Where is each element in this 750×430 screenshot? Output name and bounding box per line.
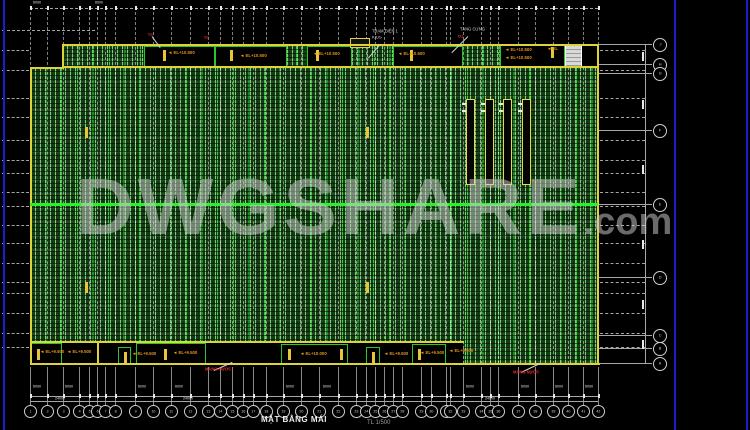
grid-bubble-bottom: 32 <box>444 405 457 418</box>
purlin-grid-line <box>2 243 29 244</box>
grid-bubble-label: 16 <box>241 410 245 414</box>
grid-bubble-label: E <box>659 203 661 207</box>
dim-tick <box>553 6 555 10</box>
dim-tick <box>583 394 585 398</box>
skylight-bar <box>466 99 475 185</box>
vertical-grid-line <box>115 12 116 364</box>
leader-arrow-icon: ◄ <box>240 54 245 58</box>
grid-bubble-label: 9 <box>134 410 136 414</box>
vertical-grid-line <box>490 12 491 364</box>
annotation-red-label: MÁNG NƯỚC <box>205 368 231 372</box>
dim-tick <box>63 6 65 10</box>
grid-bubble-label: 25 <box>373 410 377 414</box>
annotation-red-label: MÁNG NƯỚC <box>513 371 539 375</box>
bay-dimension-text: 6000 <box>466 385 474 389</box>
grid-bubble-bottom: 1 <box>24 405 37 418</box>
purlin-grid-line <box>2 347 29 348</box>
leader-arrow-icon: ◄ <box>40 350 45 354</box>
elevation-label: ◄ EL+9.500 <box>384 352 408 356</box>
elevation-label: ◄ EL+10.000 <box>300 352 327 356</box>
dim-tick <box>450 394 452 398</box>
elevation-label: ◄ EL+9.500 <box>40 350 64 354</box>
bay-dimension-text: 6000 <box>286 385 294 389</box>
dim-tick <box>421 394 423 398</box>
grid-bubble-label: B <box>659 347 661 351</box>
purlin-grid-line <box>2 117 29 118</box>
dim-tick <box>356 6 358 10</box>
dim-tick <box>190 6 192 10</box>
dim-tick <box>153 394 155 398</box>
purlin-grid-line <box>600 50 645 51</box>
purlin-grid-line <box>2 173 29 174</box>
grid-bubble-bottom: 3 <box>57 405 70 418</box>
right-dimension-line <box>645 44 646 363</box>
dim-tick <box>266 394 268 398</box>
roof-vent-box <box>393 46 463 67</box>
annotation-white-label: TĂNG CỨNG <box>460 28 485 32</box>
grid-bubble-label: 7 <box>104 410 106 414</box>
leader-arrow-icon: ◄ <box>67 350 72 354</box>
grid-bubble-label: 34 <box>479 410 483 414</box>
dim-tick <box>79 6 81 10</box>
elevation-label: ◄ EL+10.500 <box>313 52 340 56</box>
frame-grid-line <box>598 73 652 74</box>
bay-dimension-text: 6000 <box>585 385 593 389</box>
dim-tick <box>89 394 91 398</box>
drain-marker <box>288 349 291 360</box>
dim-tick <box>30 6 32 10</box>
dim-tick <box>232 6 234 10</box>
ridge-line <box>30 203 598 206</box>
bay-dimension-text: 6000 <box>33 385 41 389</box>
purlin-grid-line <box>2 206 29 207</box>
dim-tick <box>253 394 255 398</box>
skylight-tick <box>518 103 522 105</box>
grid-bubble-right: B <box>653 342 667 356</box>
purlin-grid-line <box>2 160 29 161</box>
dim-tick <box>393 394 395 398</box>
roof-edge-line <box>30 67 32 365</box>
grid-bubble-bottom: 36 <box>492 405 505 418</box>
dim-tick <box>105 6 107 10</box>
vertical-grid-line <box>105 12 106 364</box>
drain-marker <box>372 352 375 363</box>
dim-tick <box>518 6 520 10</box>
vertical-grid-line <box>135 12 136 364</box>
purlin-grid-line <box>600 192 645 193</box>
viewport-frame-line <box>674 0 676 430</box>
grid-bubble-label: 3 <box>62 410 64 414</box>
frame-grid-line <box>598 130 652 131</box>
skylight-bar <box>503 99 512 185</box>
grid-bubble-label: 21 <box>317 410 321 414</box>
dim-tick <box>30 394 32 398</box>
dim-tick <box>97 394 99 398</box>
annotation-red-label: S1 <box>148 33 153 37</box>
purlin-grid-line <box>600 243 645 244</box>
grid-bubble-bottom: 9 <box>129 405 142 418</box>
purlin-grid-line <box>600 313 645 314</box>
drain-marker <box>85 127 88 138</box>
dim-tick <box>47 6 49 10</box>
skylight-bar <box>485 99 494 185</box>
dim-tick <box>319 6 321 10</box>
grid-line-extension <box>2 30 95 31</box>
elevation-label: ◄ EL+9.500 <box>132 352 156 356</box>
grid-bubble-bottom: 30 <box>425 405 438 418</box>
roof-edge-line <box>30 363 600 365</box>
purlin-grid-line <box>2 263 29 264</box>
grid-bubble-label: 22 <box>336 410 340 414</box>
grid-bubble-label: 10 <box>151 410 155 414</box>
purlin-grid-line <box>2 140 29 141</box>
grid-bubble-label: 11 <box>170 410 174 414</box>
grid-bubble-label: 19 <box>281 410 285 414</box>
dim-tick <box>243 394 245 398</box>
grid-bubble-label: 15 <box>230 410 234 414</box>
dim-tick <box>490 6 492 10</box>
purlin-grid-line <box>600 225 645 226</box>
purlin-grid-line <box>2 225 29 226</box>
bay-dimension-text: 6000 <box>65 385 73 389</box>
grid-bubble-right: E <box>653 198 667 212</box>
dim-tick <box>301 6 303 10</box>
grid-bubble-bottom: 8 <box>109 405 122 418</box>
grid-bubble-bottom: 41 <box>577 405 590 418</box>
dim-tick <box>481 6 483 10</box>
grid-bubble-label: 27 <box>391 410 395 414</box>
elevation-label: ◄ EL+10.500 <box>505 48 532 52</box>
dim-tick <box>463 394 465 398</box>
leader-arrow-icon: ◄ <box>313 52 318 56</box>
leader-arrow-icon: ◄ <box>300 352 305 356</box>
grid-bubble-bottom: 42 <box>592 405 605 418</box>
grid-bubble-label: 38 <box>533 410 537 414</box>
skylight-bar <box>522 99 531 185</box>
viewport-frame-line <box>3 0 5 430</box>
drawing-title: MẶT BẰNG MÁI <box>261 415 327 424</box>
vertical-grid-line <box>356 12 357 364</box>
dim-tick <box>47 394 49 398</box>
grid-bubble-label: 29 <box>419 410 423 414</box>
dim-tick <box>220 394 222 398</box>
bay-dimension-text: 6000 <box>555 385 563 389</box>
grid-bubble-label: G <box>659 72 662 76</box>
dim-tick <box>319 394 321 398</box>
skylight-tick <box>499 110 503 112</box>
vertical-grid-line <box>301 12 302 364</box>
dim-tick <box>598 6 600 10</box>
frame-grid-line <box>598 363 652 364</box>
grid-bubble-label: 37 <box>516 410 520 414</box>
purlin-grid-line <box>2 70 29 71</box>
grid-bubble-bottom: 33 <box>457 405 470 418</box>
dim-tick <box>568 6 570 10</box>
leader-arrow-icon: ◄ <box>505 56 510 60</box>
grid-bubble-right: D <box>653 271 667 285</box>
dim-tick <box>463 6 465 10</box>
drain-marker <box>230 50 233 61</box>
drain-marker <box>164 349 167 360</box>
dim-tick <box>79 394 81 398</box>
leader-arrow-icon: ◄ <box>547 47 552 51</box>
roof-access-box <box>350 38 370 48</box>
dim-tick <box>105 394 107 398</box>
grid-bubble-label: 13 <box>206 410 210 414</box>
dim-tick <box>283 394 285 398</box>
vertical-grid-line <box>498 12 499 364</box>
annotation-white-label: KIOS <box>372 36 382 40</box>
frame-grid-line <box>598 204 652 205</box>
dimension-text-mark <box>642 300 644 309</box>
grid-bubble-label: 26 <box>382 410 386 414</box>
elevation-label: ◄ EL+9.500 <box>449 349 473 353</box>
dim-tick <box>446 6 448 10</box>
skylight-tick <box>499 103 503 105</box>
roof-edge-line <box>97 342 99 364</box>
grid-bubble-label: 42 <box>596 410 600 414</box>
elevation-label: ◄ EL+9.500 <box>67 350 91 354</box>
grid-bubble-right: G <box>653 67 667 81</box>
skylight-tick <box>481 110 485 112</box>
dim-tick <box>384 394 386 398</box>
dim-tick <box>115 394 117 398</box>
dim-tick <box>97 6 99 10</box>
leader-arrow-icon: ◄ <box>449 349 454 353</box>
dimension-text-mark <box>642 165 644 174</box>
skylight-tick <box>462 110 466 112</box>
drain-marker <box>163 50 166 61</box>
grid-bubble-label: 1 <box>29 410 31 414</box>
bay-dimension-text: 6000 <box>323 385 331 389</box>
grid-bubble-label: 30 <box>429 410 433 414</box>
dim-tick <box>450 6 452 10</box>
elevation-label: ◄ EL+10.500 <box>240 54 267 58</box>
dim-tick <box>375 6 377 10</box>
leader-arrow-icon: ◄ <box>398 52 403 56</box>
dim-tick <box>208 6 210 10</box>
dim-tick <box>375 394 377 398</box>
purlin-grid-line <box>600 173 645 174</box>
vertical-grid-line <box>47 12 48 364</box>
annotation-red-label: S1 <box>204 36 209 40</box>
elevation-label: ◄ EL+9.500 <box>420 351 444 355</box>
dimension-text-mark <box>642 100 644 109</box>
grid-bubble-bottom: 12 <box>184 405 197 418</box>
grid-bubble-bottom: 17 <box>247 405 260 418</box>
vertical-grid-line <box>79 12 80 364</box>
frame-grid-line <box>598 64 652 65</box>
elevation-label: ◄ EL+10.500 <box>505 56 532 60</box>
leader-arrow-icon: ◄ <box>384 352 389 356</box>
dim-tick <box>356 394 358 398</box>
dim-tick <box>253 6 255 10</box>
dimension-text-mark <box>642 240 644 249</box>
elevation-label: ◄ EL+10.500 <box>398 52 425 56</box>
grid-bubble-label: J <box>659 43 661 47</box>
leader-arrow-icon: ◄ <box>505 48 510 52</box>
roof-ladder-panel <box>565 44 582 67</box>
grid-bubble-label: 8 <box>114 410 116 414</box>
dimension-text: 6000 <box>33 1 41 5</box>
dim-tick <box>583 6 585 10</box>
dim-tick <box>115 6 117 10</box>
purlin-grid-line <box>600 293 645 294</box>
dimension-text-mark <box>642 52 644 61</box>
dim-tick <box>384 6 386 10</box>
grid-bubble-right: J <box>653 38 667 52</box>
dim-tick <box>153 6 155 10</box>
leader-arrow-icon: ◄ <box>132 352 137 356</box>
grid-bubble-label: A <box>659 362 661 366</box>
grid-bubble-bottom: 38 <box>529 405 542 418</box>
dim-tick <box>232 394 234 398</box>
drain-marker <box>366 282 369 293</box>
bay-dimension-text: 6000 <box>175 385 183 389</box>
dim-row2-line <box>30 401 598 402</box>
purlin-grid-line <box>2 282 29 283</box>
grid-bubble-bottom: 40 <box>562 405 575 418</box>
purlin-grid-line <box>2 98 29 99</box>
dim-tick <box>393 6 395 10</box>
grid-bubble-bottom: 22 <box>332 405 345 418</box>
roof-edge-line <box>62 44 598 46</box>
vertical-grid-line <box>89 12 90 364</box>
purlin-grid-line <box>600 160 645 161</box>
grid-bubble-right: C <box>653 329 667 343</box>
grid-bubble-label: 17 <box>251 410 255 414</box>
vertical-grid-line <box>366 12 367 364</box>
elevation-label: ◄ EL+9.500 <box>173 351 197 355</box>
vertical-grid-line <box>463 12 464 364</box>
dim-tick <box>266 6 268 10</box>
purlin-grid-line <box>2 313 29 314</box>
purlin-grid-line <box>600 206 645 207</box>
roof-vent-box <box>307 46 352 67</box>
dim-tick <box>498 6 500 10</box>
dim-tick <box>402 394 404 398</box>
annotation-red-label: Đ1 <box>458 35 463 39</box>
grid-extension-line <box>598 367 599 406</box>
grid-bubble-label: 24 <box>364 410 368 414</box>
roof-edge-black-strip <box>582 45 598 67</box>
grid-bubble-label: 14 <box>218 410 222 414</box>
grid-bubble-label: 20 <box>299 410 303 414</box>
dim-tick <box>446 394 448 398</box>
dim-tick <box>481 394 483 398</box>
dim-tick <box>421 6 423 10</box>
cad-drawing-viewport[interactable]: DWGSHARE .com MẶT BẰNG MÁI TL 1/500 6000… <box>0 0 750 430</box>
skylight-tick <box>481 103 485 105</box>
purlin-grid-line <box>2 192 29 193</box>
purlin-grid-line <box>600 282 645 283</box>
bay-dimension-text: 6000 <box>138 385 146 389</box>
leader-arrow-icon: ◄ <box>173 351 178 355</box>
elevation-label: ◄ EL+10.500 <box>168 51 195 55</box>
frame-grid-line <box>598 277 652 278</box>
grid-bubble-label: 39 <box>551 410 555 414</box>
grid-bubble-label: 32 <box>448 410 452 414</box>
dim-tick <box>535 394 537 398</box>
drain-marker <box>85 282 88 293</box>
grid-bubble-label: 4 <box>78 410 80 414</box>
grid-bubble-label: 33 <box>461 410 465 414</box>
grid-bubble-label: D <box>659 276 662 280</box>
dim-tick <box>135 394 137 398</box>
dim-tick <box>338 6 340 10</box>
vertical-grid-line <box>481 12 482 364</box>
dim-tick <box>598 394 600 398</box>
drain-marker <box>340 349 343 360</box>
purlin-grid-line <box>600 140 645 141</box>
dim-tick <box>338 394 340 398</box>
purlin-grid-line <box>600 70 645 71</box>
grid-bubble-bottom: 10 <box>147 405 160 418</box>
purlin-grid-line <box>600 117 645 118</box>
grid-bubble-label: 18 <box>264 410 268 414</box>
roof-edge-line <box>62 44 64 68</box>
grid-bubble-label: C <box>659 334 662 338</box>
grid-bubble-label: 41 <box>581 410 585 414</box>
dim-tick <box>220 6 222 10</box>
viewport-frame-line <box>746 0 748 430</box>
dim-tick <box>518 394 520 398</box>
dim-tick <box>366 6 368 10</box>
group-dimension-text: 24000 <box>485 397 495 401</box>
grid-bubble-right: A <box>653 357 667 371</box>
dim-tick <box>402 6 404 10</box>
dim-tick <box>243 6 245 10</box>
skylight-tick <box>518 110 522 112</box>
dim-tick <box>498 394 500 398</box>
dim-tick <box>535 6 537 10</box>
purlin-grid-line <box>600 263 645 264</box>
vertical-grid-line <box>375 12 376 364</box>
roof-vent-box <box>144 46 215 67</box>
dim-tick <box>366 394 368 398</box>
grid-bubble-label: 40 <box>566 410 570 414</box>
elevation-label: ◄ EL <box>547 47 558 51</box>
purlin-grid-line <box>2 50 29 51</box>
dim-tick <box>301 394 303 398</box>
dim-tick <box>568 394 570 398</box>
roof-edge-line <box>62 66 598 68</box>
dim-tick <box>283 6 285 10</box>
vertical-grid-line <box>97 12 98 364</box>
dim-tick <box>431 394 433 398</box>
purlin-grid-line <box>2 333 29 334</box>
dim-tick <box>171 394 173 398</box>
leader-arrow-icon: ◄ <box>168 51 173 55</box>
frame-grid-line <box>598 335 652 336</box>
grid-bubble-right: F <box>653 124 667 138</box>
dim-tick <box>171 6 173 10</box>
dim-tick <box>208 394 210 398</box>
dim-tick <box>135 6 137 10</box>
grid-bubble-label: 28 <box>400 410 404 414</box>
roof-edge-line <box>30 67 64 69</box>
vertical-grid-line <box>384 12 385 364</box>
drawing-scale: TL 1/500 <box>367 420 390 426</box>
group-dimension-text: 24000 <box>55 397 65 401</box>
purlin-grid-line <box>600 333 645 334</box>
grid-bubble-label: 12 <box>188 410 192 414</box>
dim-tick <box>89 6 91 10</box>
leader-arrow-icon: ◄ <box>420 351 425 355</box>
grid-bubble-label: 2 <box>46 410 48 414</box>
annotation-white-label: TRẠM ĐIỆN 1 <box>372 30 398 34</box>
skylight-tick <box>462 103 466 105</box>
